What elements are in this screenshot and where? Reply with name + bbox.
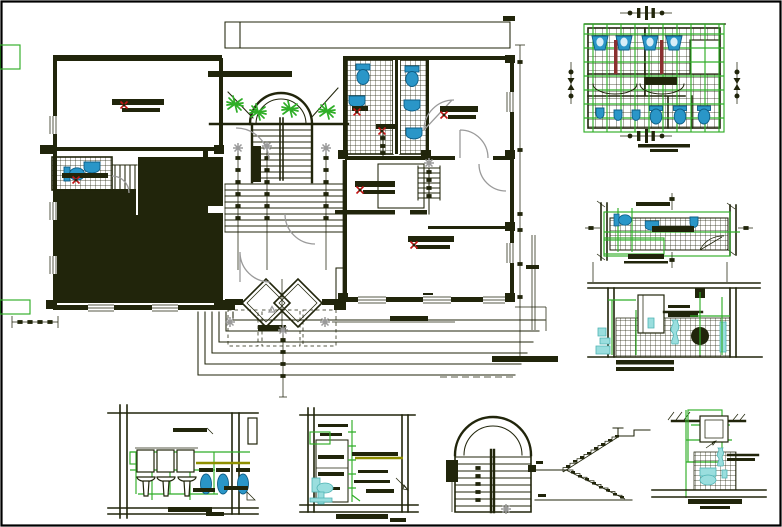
flag-marker: [446, 460, 458, 482]
basin-plan: [404, 100, 420, 111]
drawing-sheet: [0, 0, 782, 527]
mirror: [137, 450, 154, 472]
wc: [650, 106, 663, 124]
toilet-elevation-detail: [652, 410, 766, 509]
pedestal-basin: [178, 477, 196, 496]
pedestal-basin: [157, 477, 175, 496]
urinal: [614, 110, 622, 120]
bathroom-left: [52, 157, 137, 190]
wc: [674, 106, 687, 124]
urinal: [632, 110, 640, 120]
wash-basin: [666, 36, 682, 50]
basin-plan: [406, 128, 422, 139]
gray-marker: [501, 504, 511, 514]
stair-section-detail: [528, 428, 650, 500]
wc-plan: [405, 66, 419, 87]
entry-steps: [198, 312, 545, 375]
wc-plan: [614, 214, 631, 226]
cad-drawing: [0, 0, 782, 527]
plant: [227, 96, 243, 112]
main-floor-plan: [12, 16, 558, 397]
wash-basin: [616, 36, 632, 50]
dim-cluster-left: [568, 70, 575, 99]
hall-entry: [355, 158, 440, 214]
title-bar: [168, 507, 212, 512]
plant: [319, 103, 335, 119]
dim-cluster-right: [734, 70, 741, 99]
narrow-bathroom-plan-detail: [585, 193, 753, 282]
title-bar: [688, 499, 742, 504]
upper-flight: [563, 435, 619, 472]
lower-flight: [566, 470, 625, 499]
title-bar: [638, 144, 690, 148]
urinal: [596, 108, 604, 118]
wash-basin: [642, 36, 658, 50]
closet-elevation-detail: [300, 408, 418, 522]
title-bar: [616, 360, 674, 365]
bathrooms-top: [347, 60, 427, 158]
wc: [698, 106, 711, 124]
mirror: [177, 450, 194, 472]
wc-side-view: [310, 478, 333, 504]
scale-bar: [492, 356, 558, 362]
mirror: [157, 450, 174, 472]
basin-plan: [84, 162, 100, 173]
bidet-plan: [349, 96, 365, 107]
fixture: [690, 217, 698, 227]
section-marker: [269, 307, 275, 313]
wc-plan: [356, 64, 370, 85]
title-bar: [336, 514, 388, 519]
title-bar: [628, 254, 664, 259]
wash-basin: [592, 36, 608, 50]
bathroom-elevation-detail: [108, 405, 258, 518]
